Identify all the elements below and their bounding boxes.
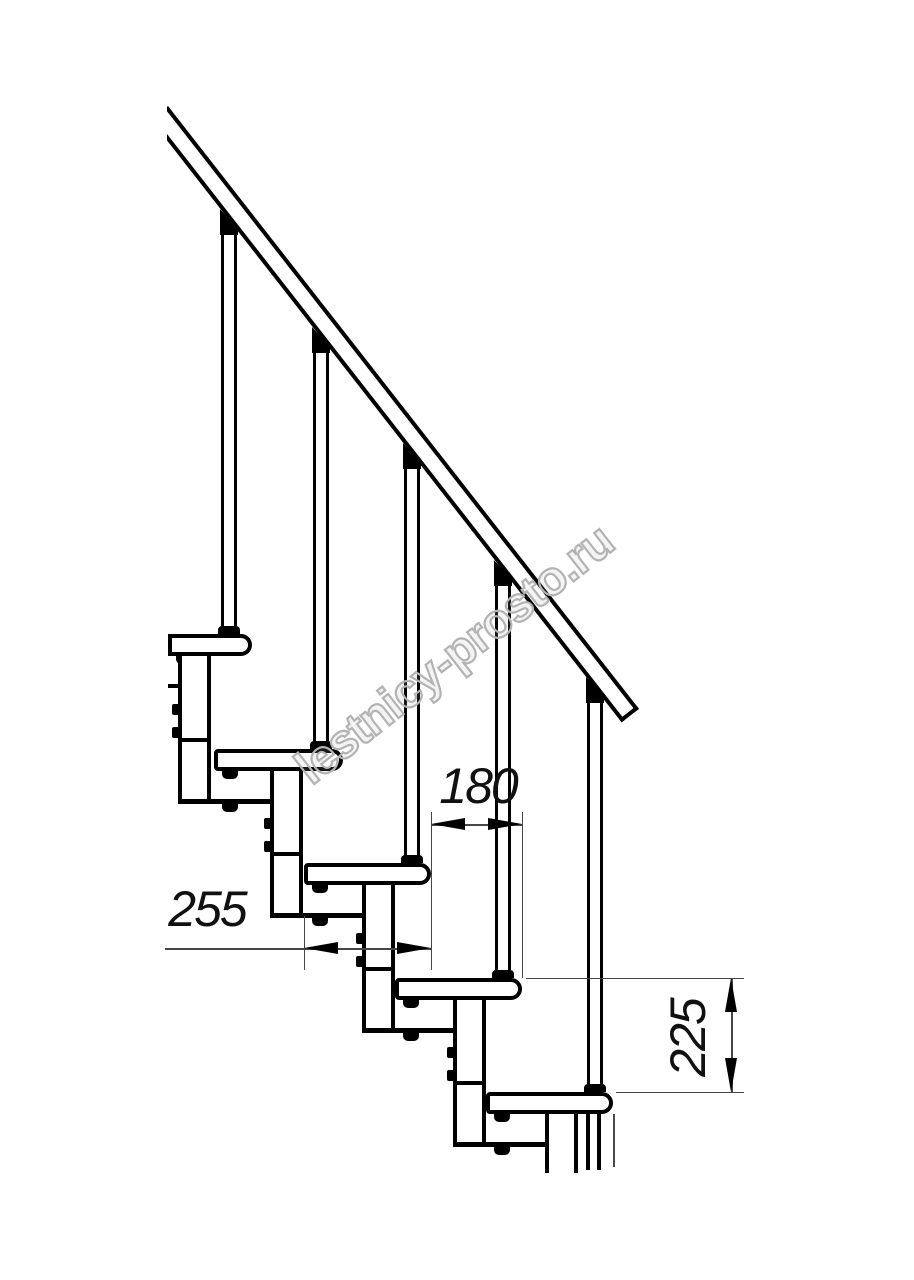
tread [395, 978, 522, 1000]
stub-line [168, 684, 178, 688]
module-joint-line [362, 967, 395, 971]
tread-support-module [545, 1114, 578, 1173]
tread [486, 1092, 613, 1114]
cut-line [613, 1114, 615, 1167]
module-joint-line [178, 738, 211, 742]
module-bracket-line [178, 799, 270, 804]
module-joint-line [270, 852, 303, 856]
handrail-crop-cover [128, 96, 167, 170]
tread-bolt-tab [403, 999, 419, 1008]
module-bolt [447, 1070, 456, 1081]
bracket-bolt-tab [494, 1146, 510, 1155]
module-bracket-line [362, 1028, 453, 1033]
module-bolt [172, 727, 181, 738]
baluster [587, 701, 603, 1084]
staircase-technical-drawing: 180 255 225 lestnicy-prosto.ru [0, 0, 914, 1280]
cut-line [597, 1114, 601, 1170]
dimension-arrow [304, 942, 338, 954]
module-bracket-line [270, 913, 362, 918]
baluster-base [584, 1084, 606, 1092]
module-bracket-line [453, 1142, 545, 1147]
dimension-label-step-run: 180 [439, 761, 516, 811]
bracket-bolt-tab [222, 803, 238, 812]
dimension-arrow [397, 942, 431, 954]
module-joint-line [453, 1081, 486, 1085]
tread [304, 863, 431, 885]
dimension-line [165, 948, 431, 950]
module-bolt [447, 1047, 456, 1058]
extension-line [526, 978, 744, 979]
extension-line [522, 812, 523, 978]
baluster-base [401, 855, 423, 863]
module-bolt [356, 956, 365, 967]
tread-bolt-tab [494, 1113, 510, 1122]
tread-bolt-tab [222, 770, 238, 779]
module-bolt [356, 933, 365, 944]
tread-support-module [178, 656, 211, 799]
dimension-label-tread-depth: 255 [168, 884, 245, 934]
cut-line [586, 1114, 590, 1170]
tread-support-module [362, 885, 395, 1028]
module-bolt [264, 841, 273, 852]
baluster [221, 233, 237, 626]
baluster [313, 351, 329, 741]
extension-line [431, 812, 432, 970]
dimension-arrow [725, 978, 737, 1012]
bracket-bolt-tab [403, 1032, 419, 1041]
baluster-base [218, 626, 240, 634]
tread [168, 634, 252, 656]
tread-support-module [453, 1000, 486, 1142]
dimension-arrow [431, 818, 465, 830]
tread-bolt-tab [312, 884, 328, 893]
dimension-arrow [488, 818, 522, 830]
tread-support-module [270, 771, 303, 913]
baluster-base [492, 970, 514, 978]
dimension-label-step-rise: 225 [663, 999, 713, 1076]
extension-line [616, 1092, 744, 1093]
dimension-arrow [725, 1058, 737, 1092]
bracket-bolt-tab [312, 917, 328, 926]
module-bolt [264, 818, 273, 829]
module-bolt [172, 704, 181, 715]
